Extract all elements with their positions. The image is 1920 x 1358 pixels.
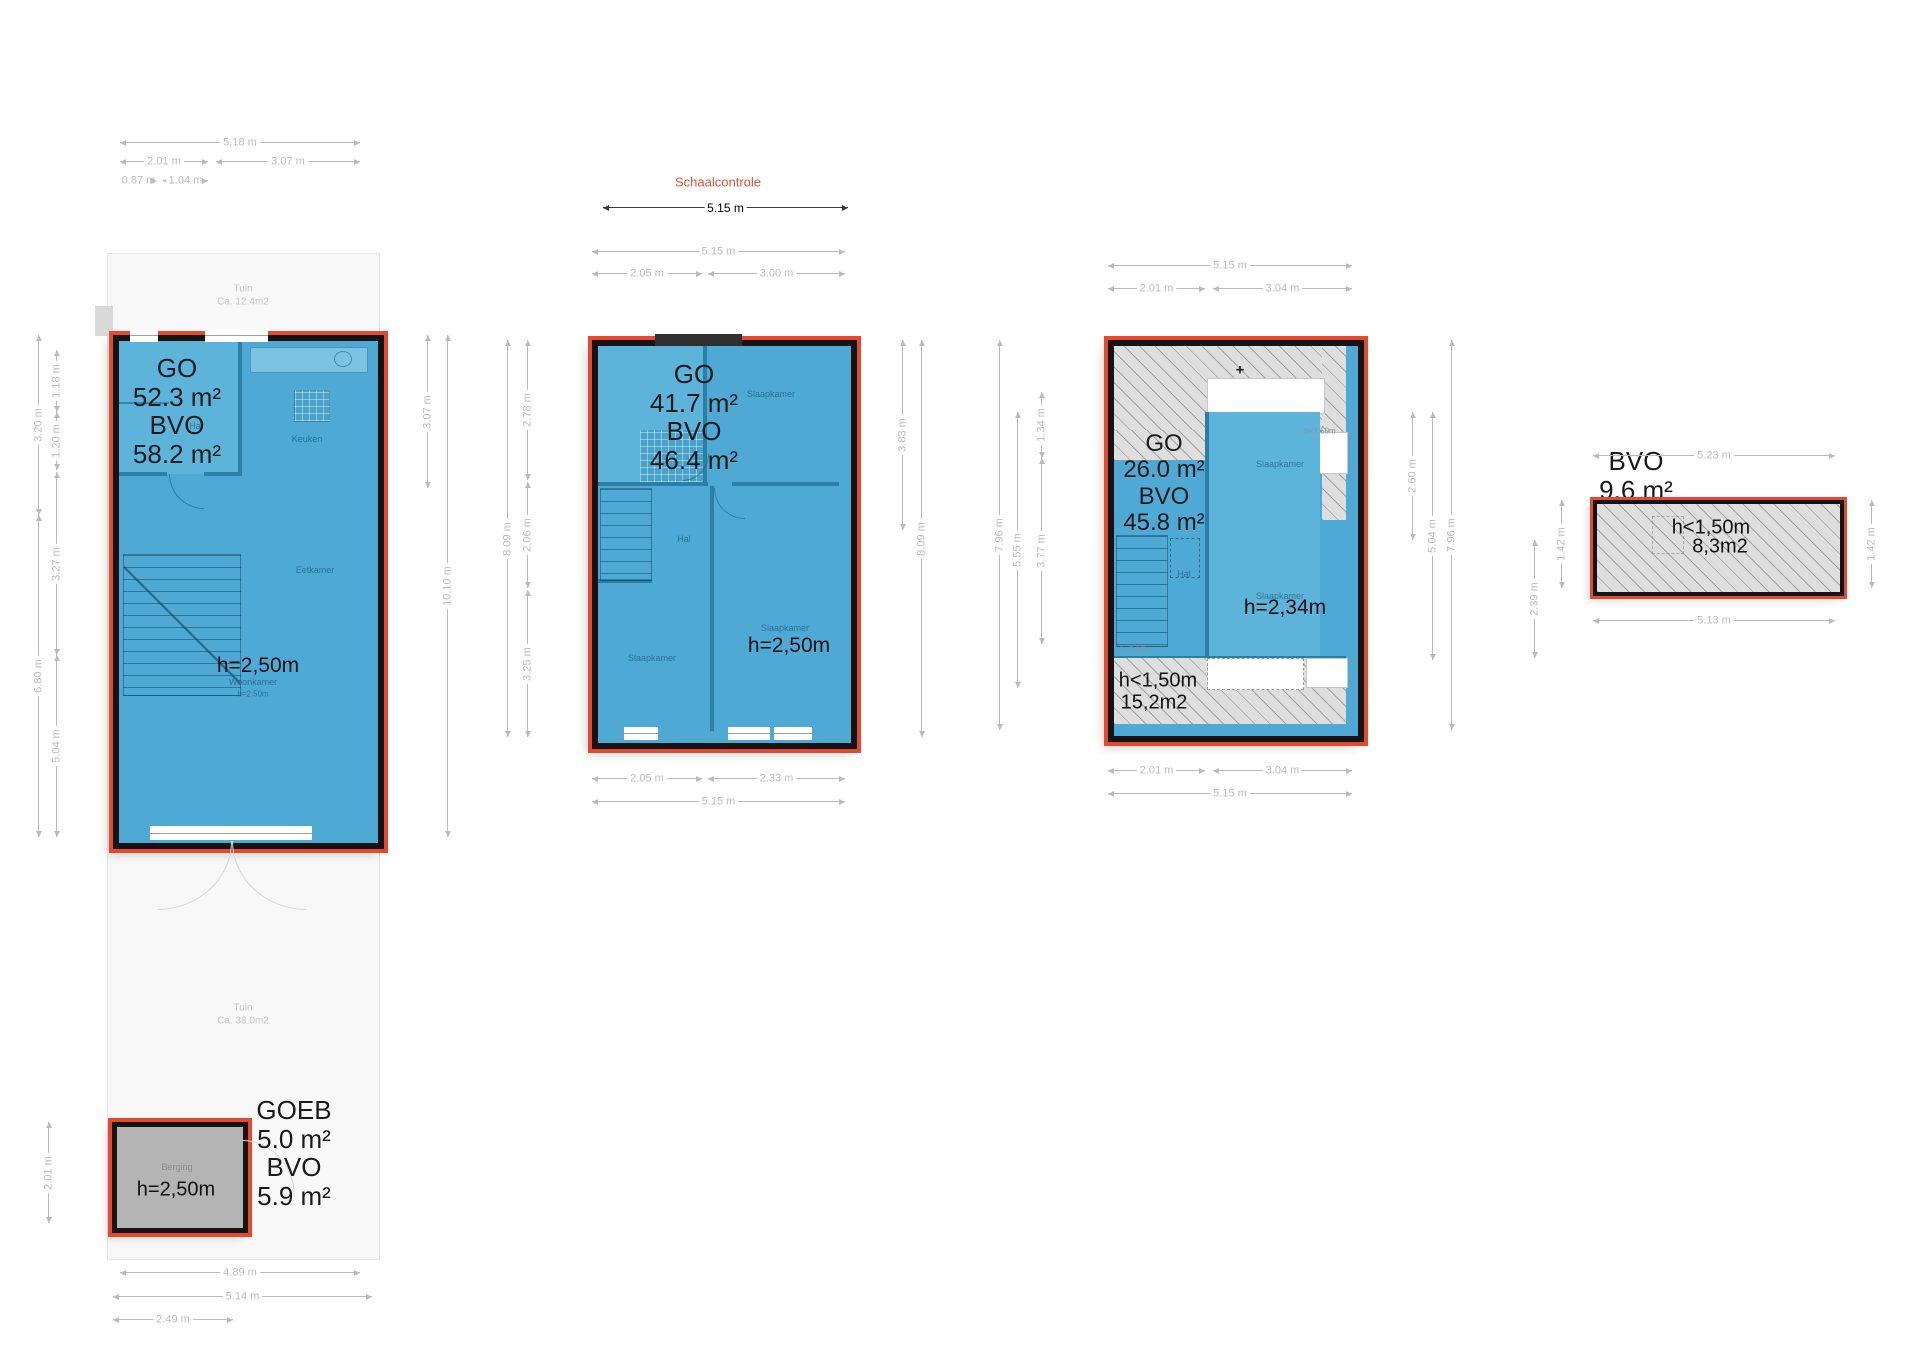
low-area-label: h<1,50m — [1119, 670, 1197, 693]
dim-plan1-left-1: 1.18 m — [51, 350, 62, 412]
floorplan-drawing: Tuin Ca. 12.4m2 Tuin Ca. 38.0m2 5.18 m 2… — [0, 0, 1920, 1358]
window — [774, 727, 812, 740]
roof-notch — [1207, 378, 1325, 414]
dim-plan2-left-4: 8.09 m — [502, 340, 513, 737]
dim-storage-left: 2.01 m — [43, 1122, 54, 1223]
dim-plan4-left: 1.42 m — [1556, 500, 1567, 588]
window — [130, 329, 158, 342]
dim-plan3-left-2: 3.77 m — [1036, 458, 1047, 644]
low-area-value: 15,2m2 — [1121, 692, 1188, 715]
front-garden-label: Tuin — [233, 284, 252, 295]
dormer-strip — [655, 334, 742, 346]
room-label-woonkamer-height: h=2,50m — [237, 690, 268, 699]
dim-plan3-left-1: 1.34 m — [1036, 392, 1047, 458]
wall — [238, 341, 242, 476]
kitchen-sink — [334, 351, 352, 367]
stove — [294, 390, 330, 422]
room-label-berging: Berging — [161, 1162, 192, 1172]
dim-plan2-bottom-right: 2.33 m — [708, 773, 845, 784]
dim-plan1-sub2: 1.04 m — [163, 175, 208, 186]
back-garden-label: Tuin — [233, 1003, 252, 1014]
dim-plan1-left-3: 3.27 m — [51, 472, 62, 655]
room-label-woonkamer: Woonkamer — [229, 677, 277, 687]
room-label-slaapkamer-right: Slaapkamer — [761, 623, 809, 633]
bvo-value: 5.9 m² — [250, 1182, 338, 1211]
dim-plan2-left-1: 2.78 m — [522, 340, 533, 480]
dim-plan4-bottom: 5.13 m — [1593, 615, 1835, 626]
dim-plan1-width-left: 2.01 m — [120, 156, 208, 167]
height-label-storage: h=2,50m — [137, 1179, 215, 1202]
dim-plan1-sub1: 0.87 m — [120, 175, 157, 186]
dim-plan3-width-right: 3.04 m — [1213, 283, 1352, 294]
room-label-hal: Hal — [677, 534, 691, 544]
area-label-second-floor: GO 26.0 m² BVO 45.8 m² — [1114, 431, 1214, 537]
dim-plan2-left-2: 2.06 m — [522, 482, 533, 588]
dim-plan3-right-3: 7.96 m — [1446, 340, 1457, 730]
go-value: 52.3 m² — [119, 383, 235, 412]
plan-ground-floor: Hal Keuken Eetkamer Woonkamer h=2,50m GO… — [113, 335, 384, 849]
door-opening — [150, 826, 312, 840]
dim-plan1-left-5: 3.20 m — [33, 335, 44, 515]
dim-plan3-bottom-total: 5.15 m — [1108, 788, 1352, 799]
dim-plan3-left-4: 7.96 m — [994, 340, 1005, 730]
plan-first-floor: Slaapkamer Hal Slaapkamer Slaapkamer GO … — [592, 340, 857, 749]
bvo-value: 46.4 m² — [636, 446, 752, 475]
low-height-small-left: h<1,50m — [1120, 645, 1151, 654]
dim-plan1-width-right: 3.07 m — [216, 156, 360, 167]
dim-plan4-top: 5.23 m — [1593, 450, 1835, 461]
dim-plan1-left-2: 1.20 m — [51, 412, 62, 470]
room-label-slaapkamer: Slaapkamer — [1256, 459, 1304, 469]
parcel-bump — [95, 306, 113, 336]
dim-plan2-right-2: 8.09 m — [916, 340, 927, 737]
area-label-first-floor: GO 41.7 m² BVO 46.4 m² — [636, 360, 752, 474]
dim-plan1-right-2: 10.10 m — [442, 335, 453, 837]
dim-plan2-width-right: 3.00 m — [708, 268, 845, 279]
wall — [119, 472, 167, 476]
goeb-label: GOEB — [250, 1096, 338, 1125]
bvo-label: BVO — [1114, 484, 1214, 510]
go-value: 26.0 m² — [1114, 457, 1214, 483]
bvo-label: BVO — [636, 417, 752, 446]
plan-second-floor: + h<1,50m h<1,50m Slaapkamer Slaapkamer … — [1108, 340, 1364, 742]
low-zone-notch — [1207, 658, 1304, 690]
window — [624, 727, 658, 740]
height-label-first-floor: h=2,50m — [748, 634, 830, 658]
low-height-small-right: h<1,50m — [1304, 427, 1335, 436]
goeb-value: 5.0 m² — [250, 1125, 338, 1154]
dim-plan3-bottom-left: 2.01 m — [1108, 765, 1205, 776]
dim-plan2-right-1: 3.83 m — [897, 340, 908, 530]
wall — [598, 482, 708, 486]
dim-plan2-width-total: 5.15 m — [592, 246, 845, 257]
slaapkamer-zone — [1207, 412, 1320, 658]
dim-plan1-left-4: 5.04 m — [51, 655, 62, 837]
window — [205, 329, 268, 342]
room-label-hal: Hal — [1177, 569, 1191, 579]
storage-box: Berging h=2,50m — [112, 1122, 248, 1233]
dim-plan4-right: 1.42 m — [1866, 500, 1877, 588]
go-label: GO — [1114, 431, 1214, 457]
dim-plan2-bottom-total: 5.15 m — [592, 796, 845, 807]
dim-plan3-bottom-right: 3.04 m — [1213, 765, 1352, 776]
front-garden-area: Ca. 12.4m2 — [217, 297, 269, 308]
stairs — [1116, 535, 1168, 647]
wall — [710, 486, 714, 731]
area-label-storage: GOEB 5.0 m² BVO 5.9 m² — [250, 1096, 338, 1210]
dim-plan3-left-3: 5.55 m — [1012, 412, 1023, 688]
dim-plan3-width-left: 2.01 m — [1108, 283, 1205, 294]
door-arc — [169, 474, 204, 509]
stairs — [600, 488, 652, 581]
scale-check-dimension: 5.15 m — [603, 202, 848, 213]
bvo-value: 58.2 m² — [119, 440, 235, 469]
dim-parcel-bottom-1: 4.89 m — [120, 1267, 360, 1278]
dim-plan2-bottom-left: 2.05 m — [592, 773, 702, 784]
wall — [204, 472, 242, 476]
area-label-ground-floor: GO 52.3 m² BVO 58.2 m² — [119, 354, 235, 468]
plan-attic-low: h<1,50m 8,3m2 — [1593, 500, 1844, 596]
dim-plan1-right-1: 3.07 m — [422, 335, 433, 488]
low-zone-notch-right — [1306, 658, 1348, 688]
scale-check-label: Schaalcontrole — [675, 175, 761, 190]
plus-marker: + — [1236, 362, 1245, 379]
dim-plan3-right-2: 5.04 m — [1427, 412, 1438, 660]
dim-parcel-bottom-3: 2.49 m — [113, 1314, 233, 1325]
go-label: GO — [119, 354, 235, 383]
room-label-slaapkamer-left: Slaapkamer — [628, 653, 676, 663]
dim-plan1-width-total: 5.18 m — [120, 137, 360, 148]
bvo-label: BVO — [250, 1153, 338, 1182]
door-arc — [714, 488, 745, 519]
go-value: 41.7 m² — [636, 389, 752, 418]
room-label-keuken: Keuken — [292, 434, 323, 444]
go-label: GO — [636, 360, 752, 389]
bvo-label: BVO — [119, 411, 235, 440]
dim-plan1-left-6: 6.80 m — [33, 515, 44, 837]
window — [728, 727, 770, 740]
wall — [732, 482, 839, 486]
dim-parcel-bottom-2: 5.14 m — [113, 1291, 372, 1302]
height-label-ground-floor: h=2,50m — [217, 654, 299, 678]
height-label-second-floor: h=2,34m — [1244, 596, 1326, 620]
room-label-slaapkamer-top: Slaapkamer — [747, 389, 795, 399]
bvo-value: 45.8 m² — [1114, 510, 1214, 536]
low-area-value: 8,3m2 — [1692, 536, 1748, 559]
dim-plan3-width-total: 5.15 m — [1108, 260, 1352, 271]
dim-plan2-left-3: 3.25 m — [522, 590, 533, 737]
dim-plan3-right-4: 2.39 m — [1529, 540, 1540, 658]
room-label-eetkamer: Eetkamer — [296, 565, 335, 575]
dim-plan2-width-left: 2.05 m — [592, 268, 702, 279]
back-garden-area: Ca. 38.0m2 — [217, 1016, 269, 1027]
dim-plan3-right-1: 2.60 m — [1407, 412, 1418, 540]
